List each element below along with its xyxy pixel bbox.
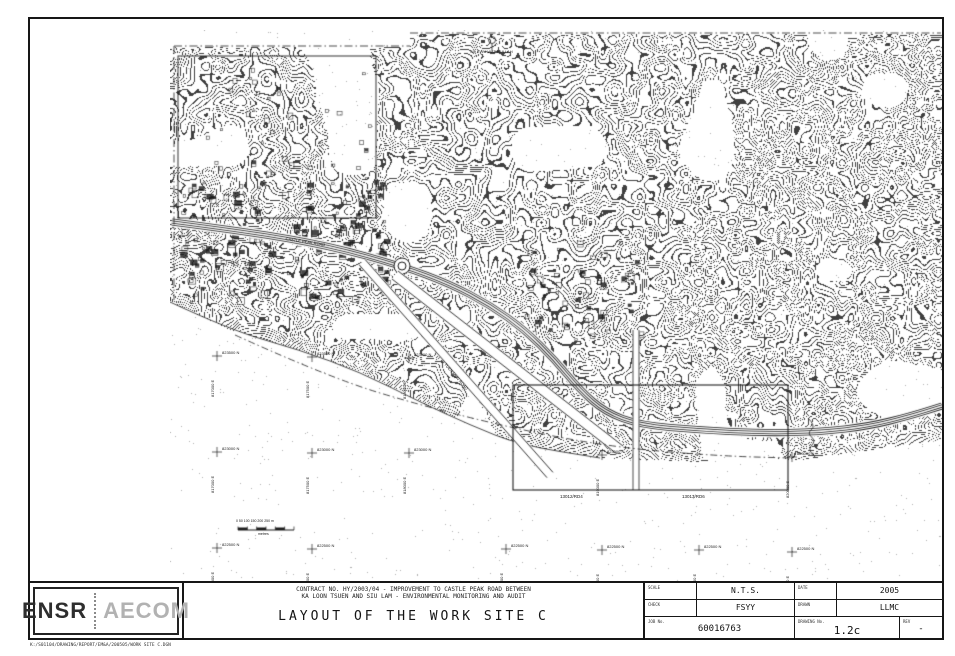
contract-text: CONTRACT NO. HY/2003/04 - IMPROVEMENT TO… [296, 583, 531, 600]
scale-value: N.T.S. [697, 583, 795, 600]
info-row-1: SCALE N.T.S. DATE 2005 [645, 583, 942, 600]
info-row-3: JOB No. 60016763 DRAWING No. 1.2c REV - [645, 617, 942, 638]
info-grid: SCALE N.T.S. DATE 2005 CHECK FSYY DRAWN … [645, 583, 942, 638]
scale-label: SCALE [645, 583, 697, 600]
file-path: K:/S01104/DRAWING/REPORT/EM&A/200505/WOR… [30, 643, 171, 648]
ensr-logo: ENSR [22, 598, 87, 624]
contract-line-1: CONTRACT NO. HY/2003/04 - IMPROVEMENT TO… [296, 586, 531, 593]
drawing-no-value: 1.2c [795, 624, 899, 637]
info-row-2: CHECK FSYY DRAWN LLMC [645, 600, 942, 617]
drawing-no-cell: DRAWING No. 1.2c [795, 617, 900, 638]
logo-divider [94, 593, 96, 629]
rev-value: - [900, 624, 942, 634]
company-logo: ENSR AECOM [33, 587, 179, 635]
title-cell: CONTRACT NO. HY/2003/04 - IMPROVEMENT TO… [182, 583, 645, 638]
sheet-frame: ENSR AECOM CONTRACT NO. HY/2003/04 - IMP… [28, 17, 944, 640]
topographic-map [170, 30, 942, 583]
job-no-cell: JOB No. 60016763 [645, 617, 795, 638]
drawing-sheet-page: ENSR AECOM CONTRACT NO. HY/2003/04 - IMP… [0, 0, 955, 656]
drawing-title: LAYOUT OF THE WORK SITE C [278, 609, 549, 624]
title-block: ENSR AECOM CONTRACT NO. HY/2003/04 - IMP… [30, 581, 942, 638]
contract-line-2: KA LOON TSUEN AND SIU LAM - ENVIRONMENTA… [296, 593, 531, 600]
date-label: DATE [795, 583, 837, 600]
drawn-value: LLMC [837, 600, 942, 617]
drawn-label: DRAWN [795, 600, 837, 617]
aecom-logo: AECOM [103, 598, 190, 624]
check-label: CHECK [645, 600, 697, 617]
job-no-value: 60016763 [645, 624, 794, 634]
rev-cell: REV - [900, 617, 942, 638]
check-value: FSYY [697, 600, 795, 617]
logo-cell: ENSR AECOM [30, 583, 182, 638]
date-value: 2005 [837, 583, 942, 600]
